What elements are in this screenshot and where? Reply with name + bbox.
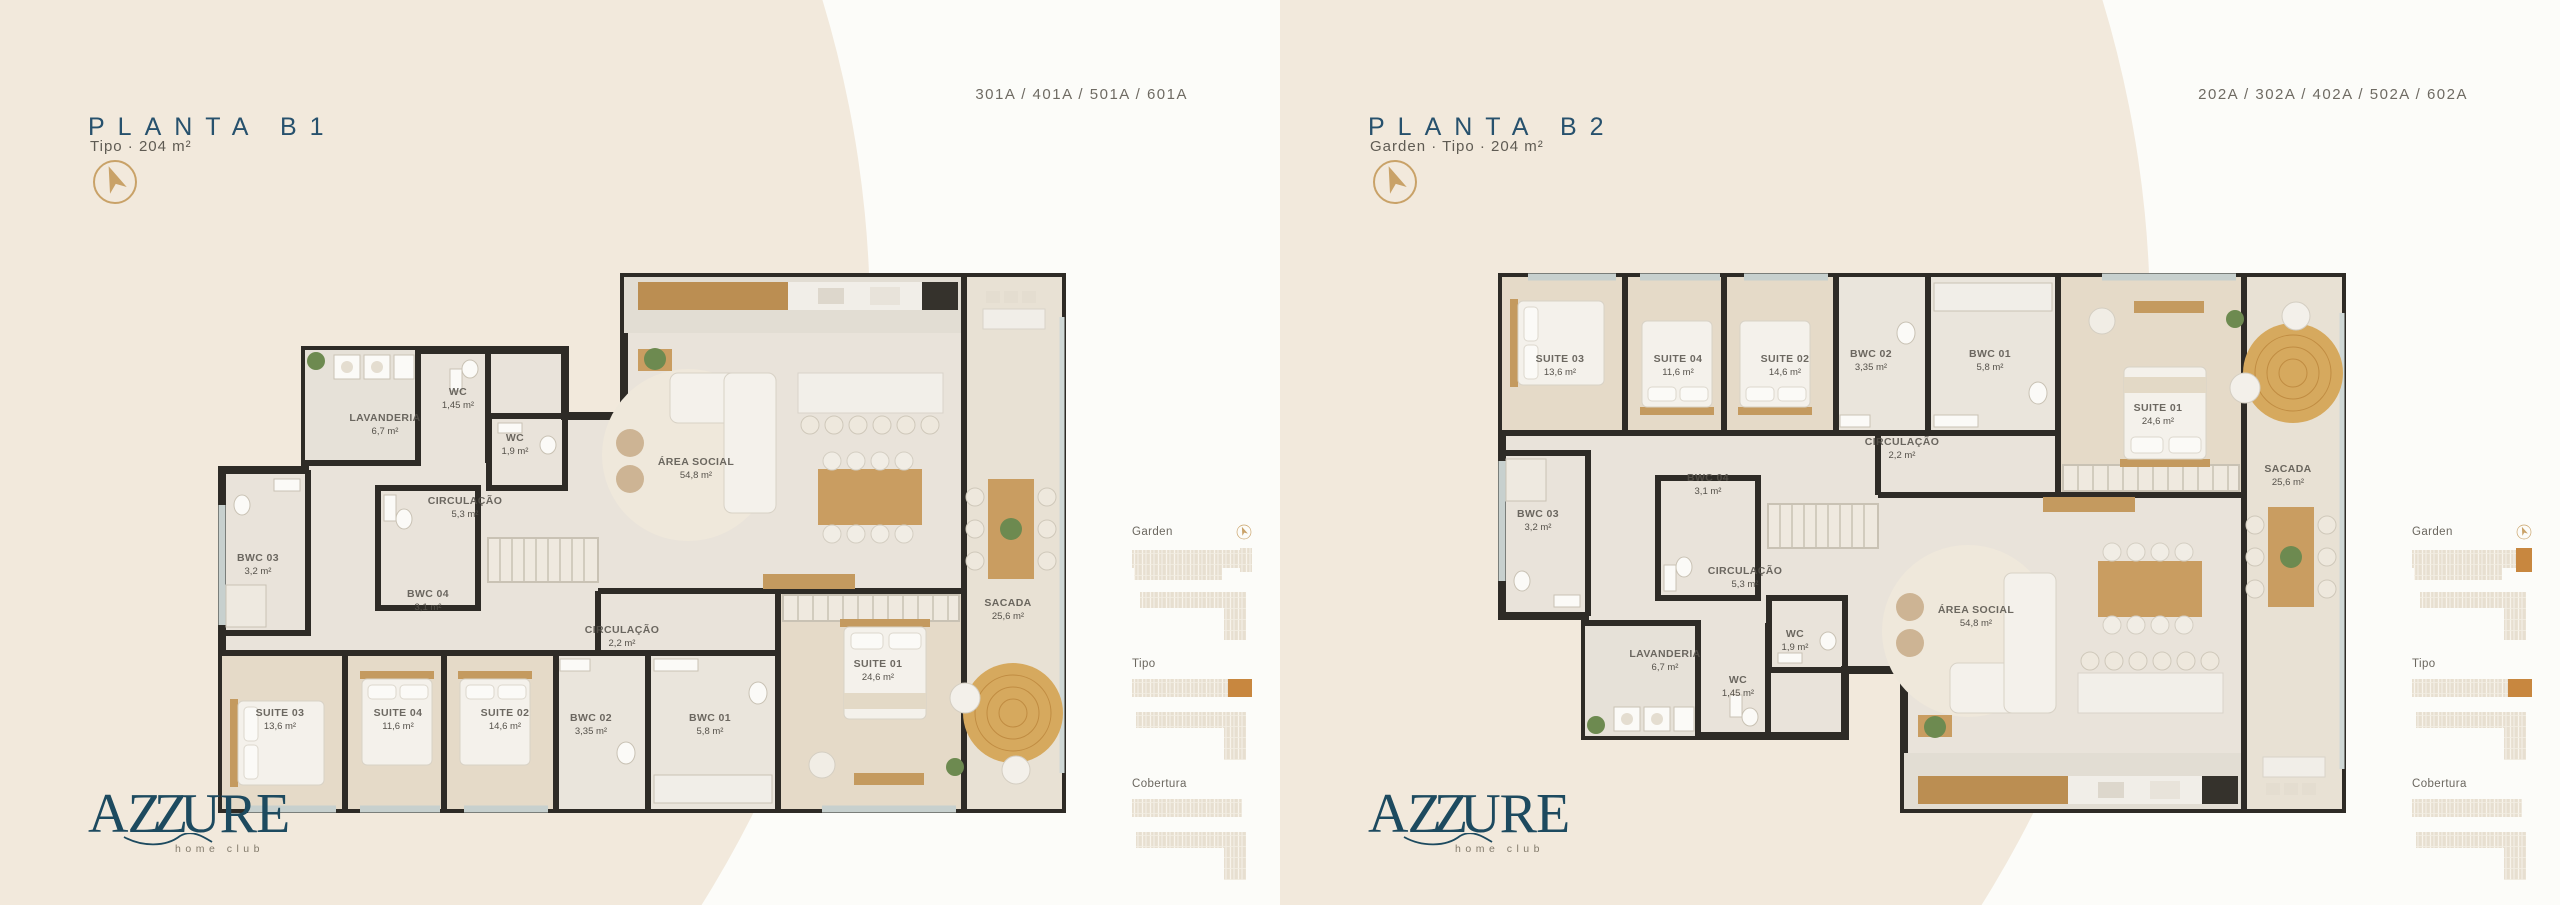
unit-highlight [2508, 679, 2532, 697]
room-label-suite03: SUITE 0313,6 m² [1536, 353, 1585, 379]
room-label-circulacao-22: CIRCULAÇÃO2,2 m² [585, 624, 660, 650]
room-label-bwc01: BWC 015,8 m² [689, 712, 731, 738]
room-label-suite04: SUITE 0411,6 m² [1654, 353, 1703, 379]
room-label-bwc02: BWC 023,35 m² [1850, 348, 1892, 374]
room-label-circulacao-53: CIRCULAÇÃO5,3 m² [428, 495, 503, 521]
panel-planta-b2: PLANTA B2 Garden · Tipo · 204 m² 202A / … [1280, 0, 2560, 905]
logo-swoosh-icon [122, 833, 214, 847]
room-label-lavanderia: LAVANDERIA6,7 m² [1629, 648, 1700, 674]
room-label-suite01: SUITE 0124,6 m² [2134, 402, 2183, 428]
room-label-suite02: SUITE 0214,6 m² [1761, 353, 1810, 379]
room-label-bwc04: BWC 043,1 m² [407, 588, 449, 614]
keyplan-label-tipo: Tipo [1132, 658, 1252, 670]
room-label-suite03: SUITE 0313,6 m² [256, 707, 305, 733]
plan-subtitle-b2: Garden · Tipo · 204 m² [1370, 138, 1544, 155]
room-label-bwc03: BWC 033,2 m² [237, 552, 279, 578]
room-label-suite04: SUITE 0411,6 m² [374, 707, 423, 733]
keyplan-garden-diagram [1132, 548, 1252, 640]
room-label-bwc01: BWC 015,8 m² [1969, 348, 2011, 374]
brand-wordmark: AZZURE [1368, 786, 1546, 842]
unit-numbers-b2: 202A / 302A / 402A / 502A / 602A [2198, 86, 2468, 103]
room-label-bwc03: BWC 033,2 m² [1517, 508, 1559, 534]
keyplan-label-garden: Garden [1132, 526, 1173, 538]
compass-icon [91, 158, 139, 206]
compass-mini-icon [1236, 524, 1252, 540]
keyplan-tipo-diagram [1132, 677, 1252, 761]
unit-numbers-b1: 301A / 401A / 501A / 601A [975, 86, 1188, 103]
room-label-wc-19: WC1,9 m² [1782, 628, 1809, 654]
room-label-lavanderia: LAVANDERIA6,7 m² [349, 412, 420, 438]
compass-mini-icon [2516, 524, 2532, 540]
keyplan-label-cobertura: Cobertura [1132, 778, 1252, 790]
floorplan-b1: LAVANDERIA6,7 m² WC1,45 m² WC1,9 m² CIRC… [218, 273, 1068, 813]
room-label-circulacao-53: CIRCULAÇÃO5,3 m² [1708, 565, 1783, 591]
floorplan-graphic-b2 [1498, 273, 2348, 813]
compass-icon [1371, 158, 1419, 206]
keyplan-label-tipo: Tipo [2412, 658, 2532, 670]
keyplan-garden-diagram [2412, 548, 2532, 640]
unit-highlight [2516, 548, 2532, 572]
keyplan-column-b1: Garden Tipo Cobertura [1132, 524, 1252, 886]
room-label-area-social: ÁREA SOCIAL54,8 m² [1938, 604, 2014, 630]
room-label-area-social: ÁREA SOCIAL54,8 m² [658, 456, 734, 482]
room-label-sacada: SACADA25,6 m² [2264, 463, 2311, 489]
brand-wordmark: AZZURE [88, 786, 266, 842]
panel-planta-b1: PLANTA B1 Tipo · 204 m² 301A / 401A / 50… [0, 0, 1280, 905]
keyplan-tipo-diagram [2412, 677, 2532, 761]
floorplan-graphic-b1 [218, 273, 1068, 813]
brand-logo: AZZURE home club [1368, 786, 1546, 855]
room-label-suite02: SUITE 0214,6 m² [481, 707, 530, 733]
plan-subtitle-b1: Tipo · 204 m² [90, 138, 192, 155]
keyplan-label-cobertura: Cobertura [2412, 778, 2532, 790]
room-label-bwc04: BWC 043,1 m² [1687, 472, 1729, 498]
room-label-bwc02: BWC 023,35 m² [570, 712, 612, 738]
floorplan-b2: LAVANDERIA6,7 m² WC1,45 m² WC1,9 m² CIRC… [1498, 273, 2348, 813]
room-label-sacada: SACADA25,6 m² [984, 597, 1031, 623]
room-label-circulacao-22: CIRCULAÇÃO2,2 m² [1865, 436, 1940, 462]
keyplan-cobertura-diagram [2412, 797, 2532, 881]
unit-highlight [1228, 679, 1252, 697]
brand-logo: AZZURE home club [88, 786, 266, 855]
room-label-wc-145: WC1,45 m² [442, 386, 474, 412]
room-label-wc-19: WC1,9 m² [502, 432, 529, 458]
keyplan-label-garden: Garden [2412, 526, 2453, 538]
logo-swoosh-icon [1402, 833, 1494, 847]
room-label-wc-145: WC1,45 m² [1722, 674, 1754, 700]
keyplan-cobertura-diagram [1132, 797, 1252, 881]
keyplan-column-b2: Garden Tipo Cobertura [2412, 524, 2532, 886]
room-label-suite01: SUITE 0124,6 m² [854, 658, 903, 684]
